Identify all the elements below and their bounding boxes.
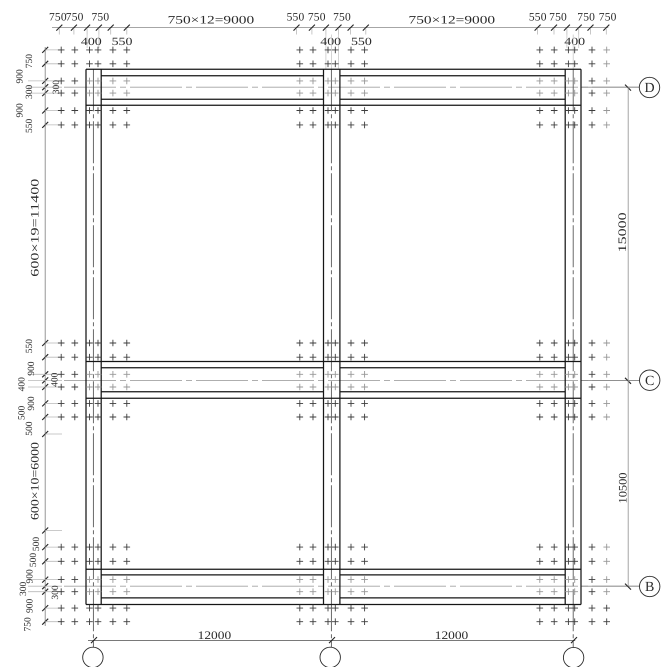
- svg-text:300: 300: [25, 84, 35, 99]
- svg-text:900: 900: [27, 396, 37, 411]
- svg-text:550: 550: [25, 339, 35, 354]
- svg-text:500: 500: [25, 421, 35, 436]
- svg-text:750: 750: [66, 12, 84, 24]
- svg-text:400: 400: [81, 36, 102, 48]
- svg-text:750: 750: [577, 12, 595, 24]
- svg-text:600×19=11400: 600×19=11400: [30, 178, 42, 276]
- svg-text:900: 900: [27, 361, 37, 376]
- svg-text:550: 550: [112, 36, 133, 48]
- svg-text:400: 400: [18, 377, 28, 392]
- svg-text:15000: 15000: [617, 212, 629, 252]
- svg-text:750: 750: [308, 12, 326, 24]
- svg-text:300: 300: [51, 585, 61, 600]
- svg-text:B: B: [645, 580, 654, 595]
- svg-text:900: 900: [16, 69, 26, 84]
- svg-text:900: 900: [26, 569, 36, 584]
- svg-text:500: 500: [32, 537, 42, 552]
- svg-text:750: 750: [49, 12, 67, 24]
- svg-text:C: C: [645, 374, 654, 389]
- svg-text:750: 750: [333, 12, 351, 24]
- svg-text:750: 750: [599, 12, 617, 24]
- svg-text:550: 550: [529, 12, 547, 24]
- svg-text:D: D: [644, 81, 654, 96]
- svg-text:900: 900: [16, 103, 26, 118]
- svg-text:550: 550: [25, 118, 35, 133]
- svg-text:400: 400: [564, 36, 585, 48]
- svg-text:300: 300: [19, 582, 29, 597]
- svg-text:750: 750: [549, 12, 567, 24]
- svg-text:750: 750: [25, 54, 35, 69]
- svg-text:750: 750: [24, 617, 34, 632]
- svg-text:10500: 10500: [617, 472, 629, 503]
- svg-text:750×12=9000: 750×12=9000: [409, 14, 496, 26]
- svg-text:550: 550: [351, 36, 372, 48]
- svg-text:500: 500: [29, 553, 39, 568]
- svg-text:750×12=9000: 750×12=9000: [168, 14, 255, 26]
- svg-text:550: 550: [287, 12, 305, 24]
- svg-text:750: 750: [91, 12, 109, 24]
- svg-text:12000: 12000: [198, 630, 232, 642]
- svg-text:500: 500: [18, 405, 28, 420]
- svg-text:900: 900: [26, 598, 36, 613]
- svg-text:600×10=6000: 600×10=6000: [30, 442, 42, 520]
- svg-text:300: 300: [52, 80, 62, 95]
- svg-text:12000: 12000: [435, 630, 469, 642]
